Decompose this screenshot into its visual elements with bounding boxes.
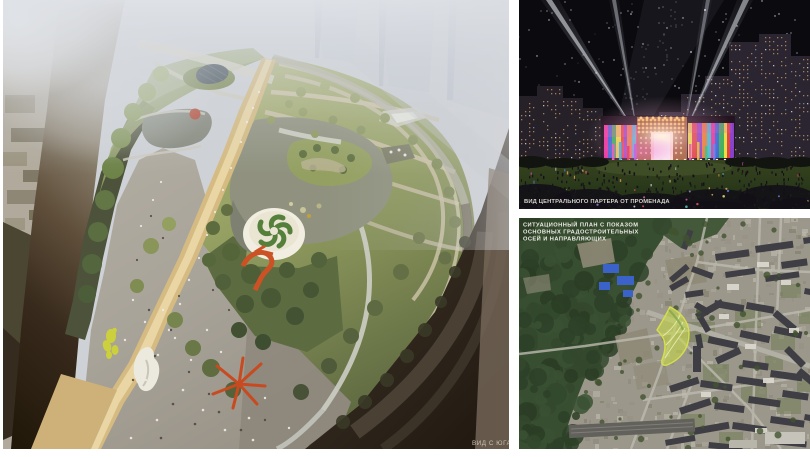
svg-text:ВИД ЦЕНТРАЛЬНОГО ПАРТЕРА ОТ ПР: ВИД ЦЕНТРАЛЬНОГО ПАРТЕРА ОТ ПРОМЕНАДА — [524, 199, 670, 205]
svg-text:СИТУАЦИОННЫЙ ПЛАН С ПОКАЗОМ: СИТУАЦИОННЫЙ ПЛАН С ПОКАЗОМ — [523, 221, 638, 229]
svg-text:ВИД С ЮГА: ВИД С ЮГА — [472, 440, 509, 447]
svg-text:ОСЕЙ И НАПРАВЛЯЮЩИХ: ОСЕЙ И НАПРАВЛЯЮЩИХ — [523, 235, 606, 243]
svg-text:ОСНОВНЫХ ГРАДОСТРОИТЕЛЬНЫХ: ОСНОВНЫХ ГРАДОСТРОИТЕЛЬНЫХ — [523, 230, 639, 236]
